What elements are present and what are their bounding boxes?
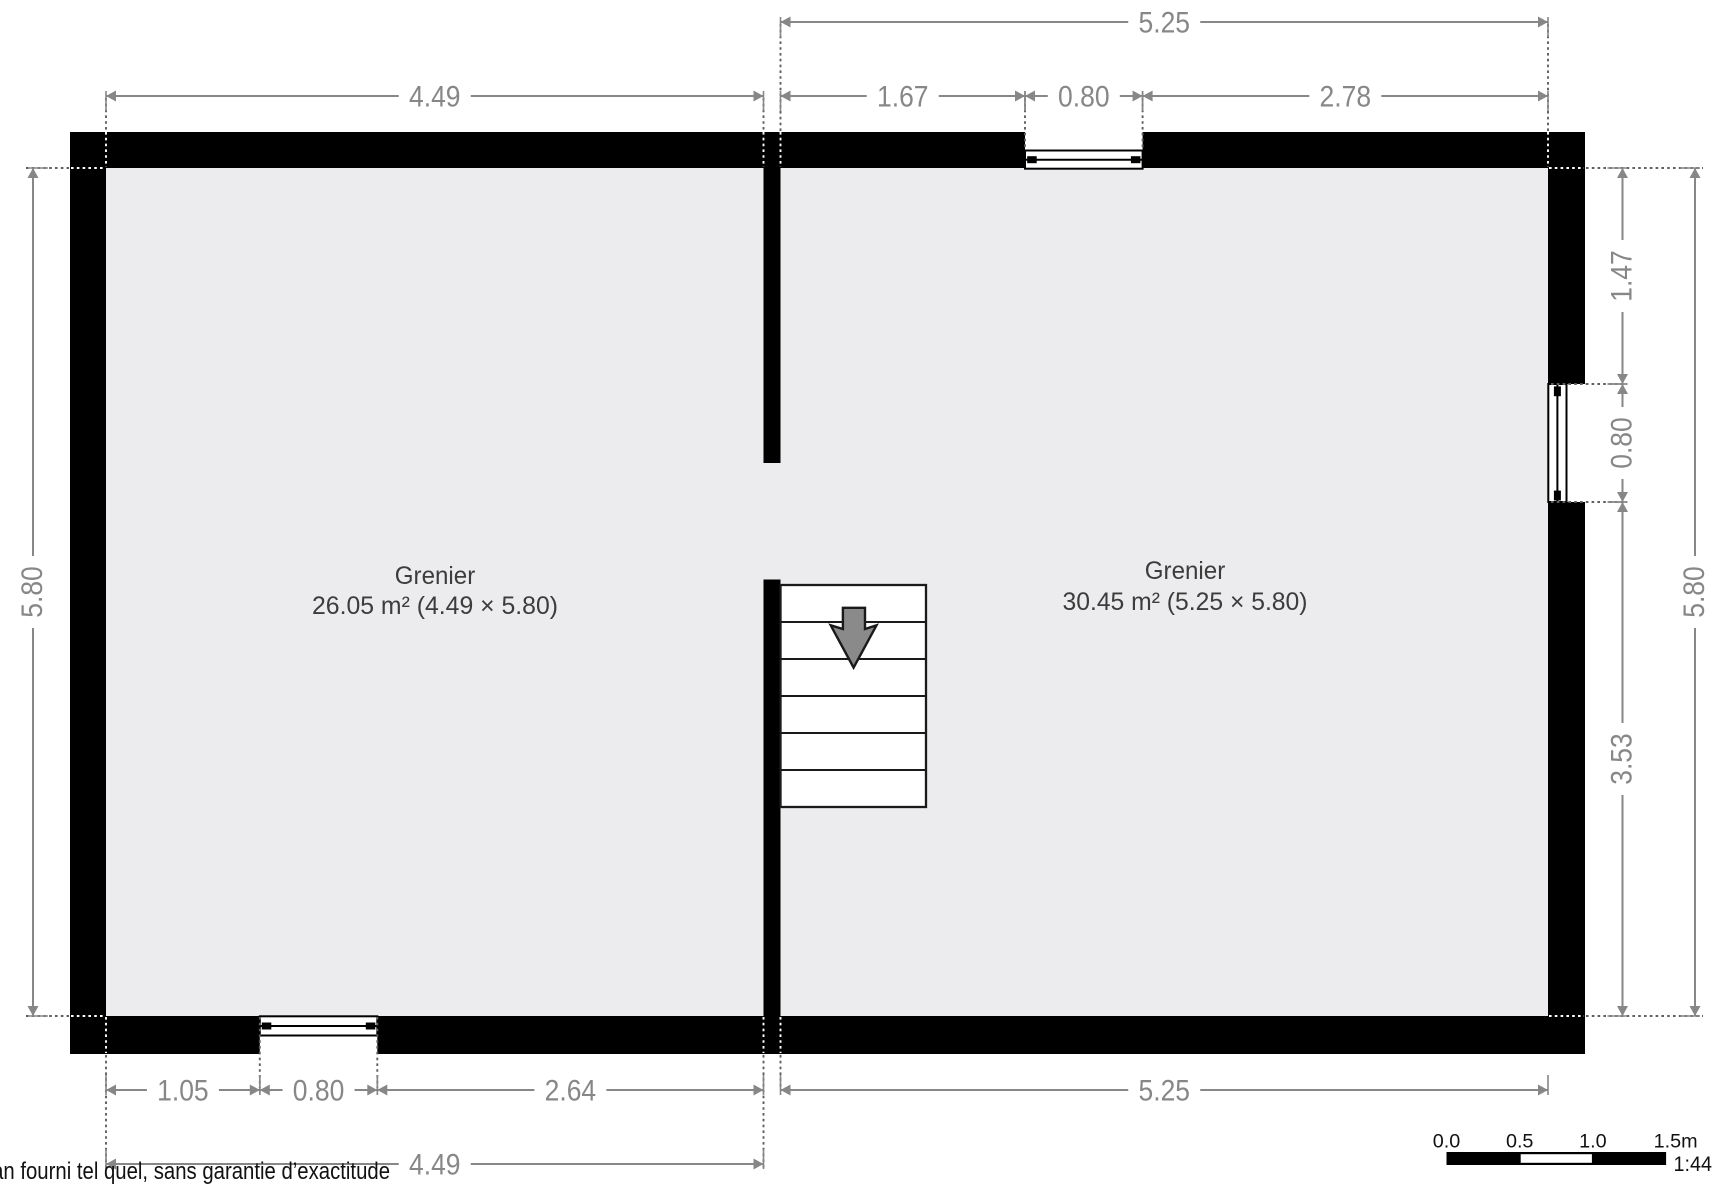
svg-text:3.53: 3.53 (1605, 733, 1638, 785)
svg-text:4.49: 4.49 (409, 1149, 461, 1182)
svg-text:5.25: 5.25 (1139, 1075, 1191, 1108)
svg-text:30.45 m² (5.25 × 5.80): 30.45 m² (5.25 × 5.80) (1063, 588, 1308, 616)
svg-text:26.05 m² (4.49 × 5.80): 26.05 m² (4.49 × 5.80) (312, 592, 558, 620)
svg-text:1.5m: 1.5m (1654, 1131, 1698, 1153)
svg-text:Plan fourni tel quel, sans gar: Plan fourni tel quel, sans garantie d’ex… (0, 1158, 390, 1185)
svg-text:0.5: 0.5 (1506, 1131, 1534, 1153)
svg-text:5.80: 5.80 (16, 566, 49, 618)
svg-text:1.05: 1.05 (157, 1075, 209, 1108)
svg-text:2.78: 2.78 (1320, 81, 1372, 114)
svg-text:1.67: 1.67 (877, 81, 929, 114)
svg-text:0.80: 0.80 (1058, 81, 1110, 114)
svg-text:0.0: 0.0 (1433, 1131, 1461, 1153)
svg-text:5.80: 5.80 (1678, 566, 1711, 618)
svg-text:4.49: 4.49 (409, 81, 461, 114)
svg-text:Grenier: Grenier (395, 562, 476, 590)
svg-text:2.64: 2.64 (545, 1075, 597, 1108)
svg-text:0.80: 0.80 (1605, 417, 1638, 469)
svg-text:1:44: 1:44 (1674, 1153, 1713, 1176)
svg-text:1.47: 1.47 (1605, 250, 1638, 302)
svg-text:Grenier: Grenier (1145, 557, 1226, 585)
svg-text:0.80: 0.80 (293, 1075, 345, 1108)
svg-text:1.0: 1.0 (1579, 1131, 1607, 1153)
svg-text:5.25: 5.25 (1139, 7, 1191, 40)
